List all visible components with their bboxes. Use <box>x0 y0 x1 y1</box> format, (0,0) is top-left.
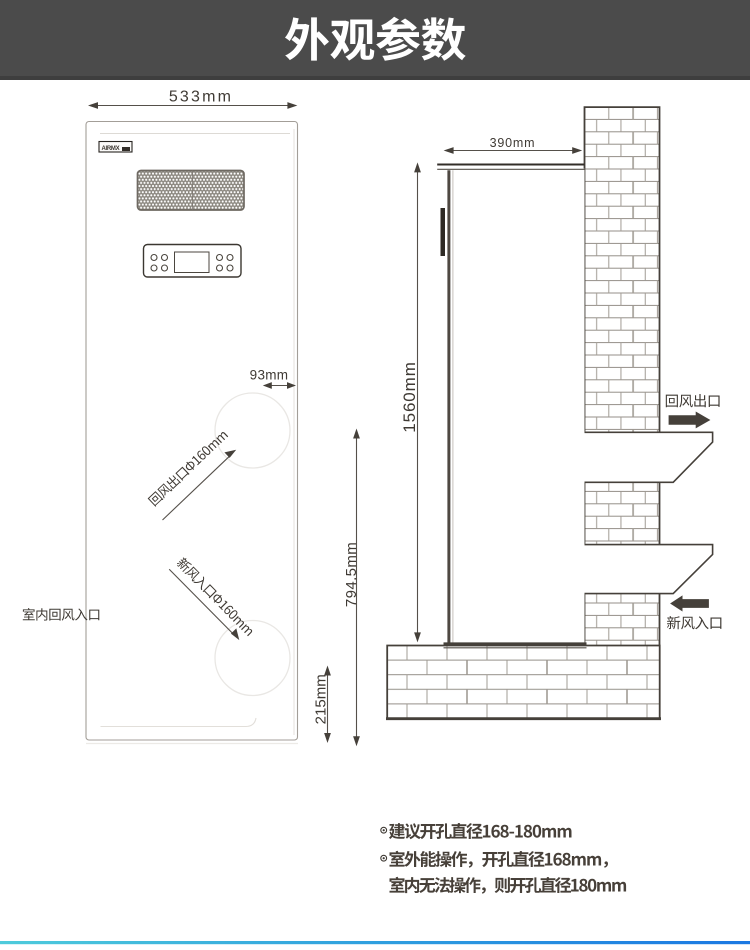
svg-text:1560mm: 1560mm <box>400 361 419 433</box>
svg-text:AIRMX: AIRMX <box>102 146 120 152</box>
svg-text:215mm: 215mm <box>313 674 330 724</box>
svg-text:93mm: 93mm <box>250 368 289 383</box>
svg-text:533mm: 533mm <box>169 89 233 106</box>
svg-text:794.5mm: 794.5mm <box>343 542 360 607</box>
svg-text:390mm: 390mm <box>490 136 536 150</box>
